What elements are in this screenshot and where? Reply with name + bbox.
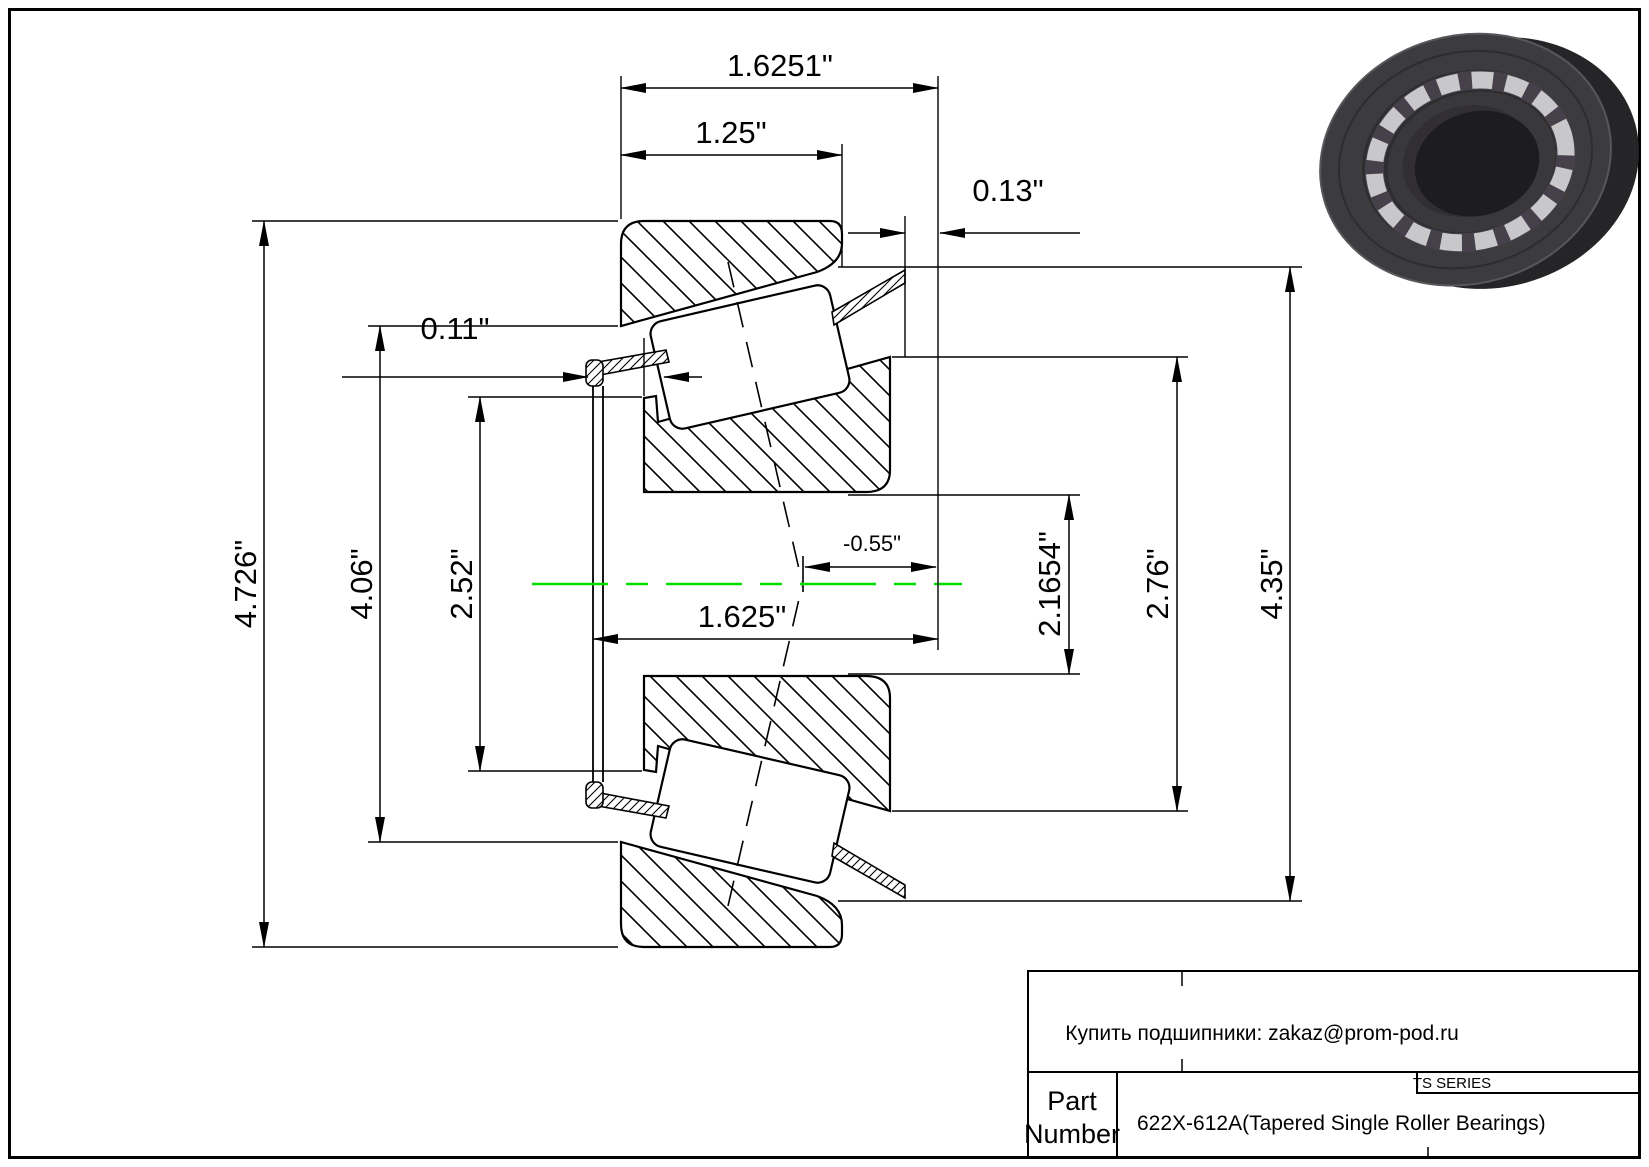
title-block-text: Купить подшипники: zakaz@prom-pod.ru TS … <box>1024 1022 1546 1149</box>
dim-bore-width: 1.625" <box>698 599 787 634</box>
part-number-label-line2: Number <box>1024 1119 1120 1149</box>
dim-overall-width: 1.6251" <box>727 48 833 83</box>
cage-lip-lower <box>586 782 603 808</box>
dim-cone-width: 1.25" <box>695 115 766 150</box>
dim-cage-front-offset: 0.11" <box>420 311 489 346</box>
cage-lip-upper <box>586 360 603 386</box>
bearing-3d-render <box>1290 0 1649 330</box>
dim-cup-outer-diameter: 4.35" <box>1254 548 1289 619</box>
dim-cup-front-diameter: 4.06" <box>344 548 379 619</box>
cage-strip-upper-right <box>832 270 905 325</box>
dim-outer-diameter: 4.726" <box>228 540 263 629</box>
supplier-email-line: Купить подшипники: zakaz@prom-pod.ru <box>1065 1022 1459 1045</box>
dim-cup-back-offset: 0.13" <box>972 173 1043 208</box>
series-label: TS SERIES <box>1413 1075 1491 1092</box>
part-number-value: 622X-612A(Tapered Single Roller Bearings… <box>1137 1112 1546 1135</box>
bearing-drawing-canvas: 1.6251" 1.25" 0.13" 0.11" 1.625" -0.55" … <box>0 0 1649 1167</box>
dim-cone-front-diameter: 2.52" <box>444 548 479 619</box>
drawing-sheet: 1.6251" 1.25" 0.13" 0.11" 1.625" -0.55" … <box>0 0 1649 1167</box>
dim-cone-back-diameter: 2.1654" <box>1032 531 1067 637</box>
part-number-label-line1: Part <box>1047 1086 1097 1116</box>
dim-rib-diameter: 2.76" <box>1140 548 1175 619</box>
cage-strip-lower-right <box>832 843 905 898</box>
dim-effective-center: -0.55" <box>843 531 901 556</box>
